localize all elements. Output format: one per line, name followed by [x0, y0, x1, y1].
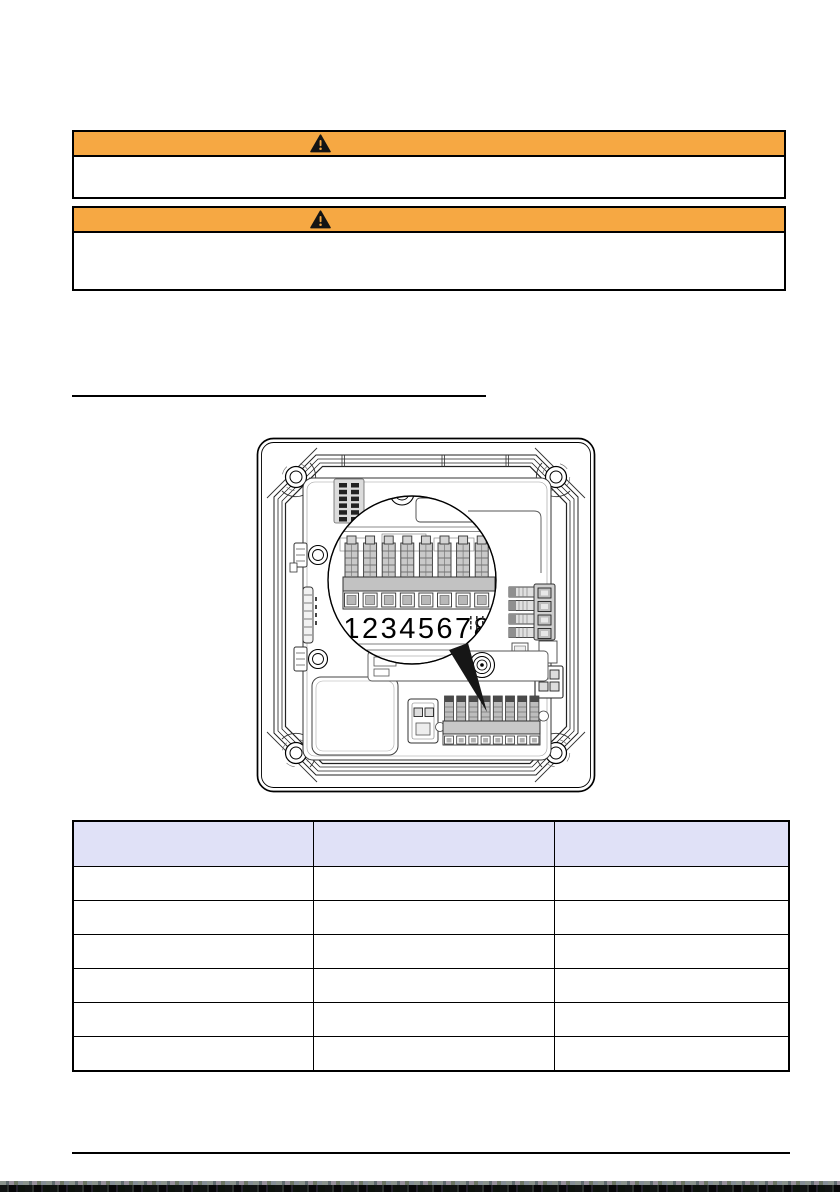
- table-row: [73, 969, 789, 1003]
- svg-text:3: 3: [381, 613, 397, 645]
- warning-triangle-icon: [310, 210, 331, 229]
- terminal-table: [72, 820, 790, 1072]
- manual-page: 1 2 3 4 5 6 7 8: [0, 0, 840, 1192]
- table-row: [73, 1037, 789, 1072]
- warning-box-2-header: [74, 208, 784, 233]
- table-row: [73, 935, 789, 969]
- table-cell: [313, 1037, 554, 1072]
- table-cell: [313, 901, 554, 935]
- table-cell: [554, 935, 789, 969]
- table-row: [73, 867, 789, 901]
- table-cell: [313, 935, 554, 969]
- warning-box-2: [72, 206, 786, 291]
- warning-box-2-body: [74, 233, 784, 289]
- table-row: [73, 901, 789, 935]
- warning-box-1-header: [74, 132, 784, 157]
- table-cell: [73, 901, 313, 935]
- table-header-cell: [554, 821, 789, 867]
- terminal-wiring-figure: 1 2 3 4 5 6 7 8: [256, 437, 596, 793]
- table-cell: [73, 935, 313, 969]
- svg-text:6: 6: [436, 613, 452, 645]
- table-header-cell: [313, 821, 554, 867]
- warning-box-1-body: [74, 157, 784, 197]
- table-cell: [554, 969, 789, 1003]
- page-bottom-edge-dark: [0, 1185, 840, 1192]
- svg-text:4: 4: [399, 613, 415, 645]
- table-cell: [73, 969, 313, 1003]
- table-cell: [73, 1037, 313, 1072]
- table-header-cell: [73, 821, 313, 867]
- table-cell: [73, 1003, 313, 1037]
- sensor-connector: [408, 699, 438, 743]
- page-bottom-edge: [0, 1181, 840, 1192]
- warning-triangle-icon: [310, 134, 331, 153]
- table-cell: [313, 867, 554, 901]
- table-cell: [313, 969, 554, 1003]
- table-cell: [554, 901, 789, 935]
- warning-box-1: [72, 130, 786, 199]
- footer-rule: [72, 1134, 790, 1154]
- controller-enclosure-diagram: 1 2 3 4 5 6 7 8: [256, 437, 596, 793]
- underlined-section-heading: [72, 377, 486, 397]
- table-cell: [554, 1003, 789, 1037]
- table-cell: [554, 867, 789, 901]
- table-cell: [313, 1003, 554, 1037]
- table-row: [73, 1003, 789, 1037]
- table-cell: [554, 1037, 789, 1072]
- svg-text:2: 2: [362, 613, 378, 645]
- svg-text:5: 5: [418, 613, 434, 645]
- table-header-row: [73, 821, 789, 867]
- table-cell: [73, 867, 313, 901]
- svg-text:7: 7: [455, 613, 471, 645]
